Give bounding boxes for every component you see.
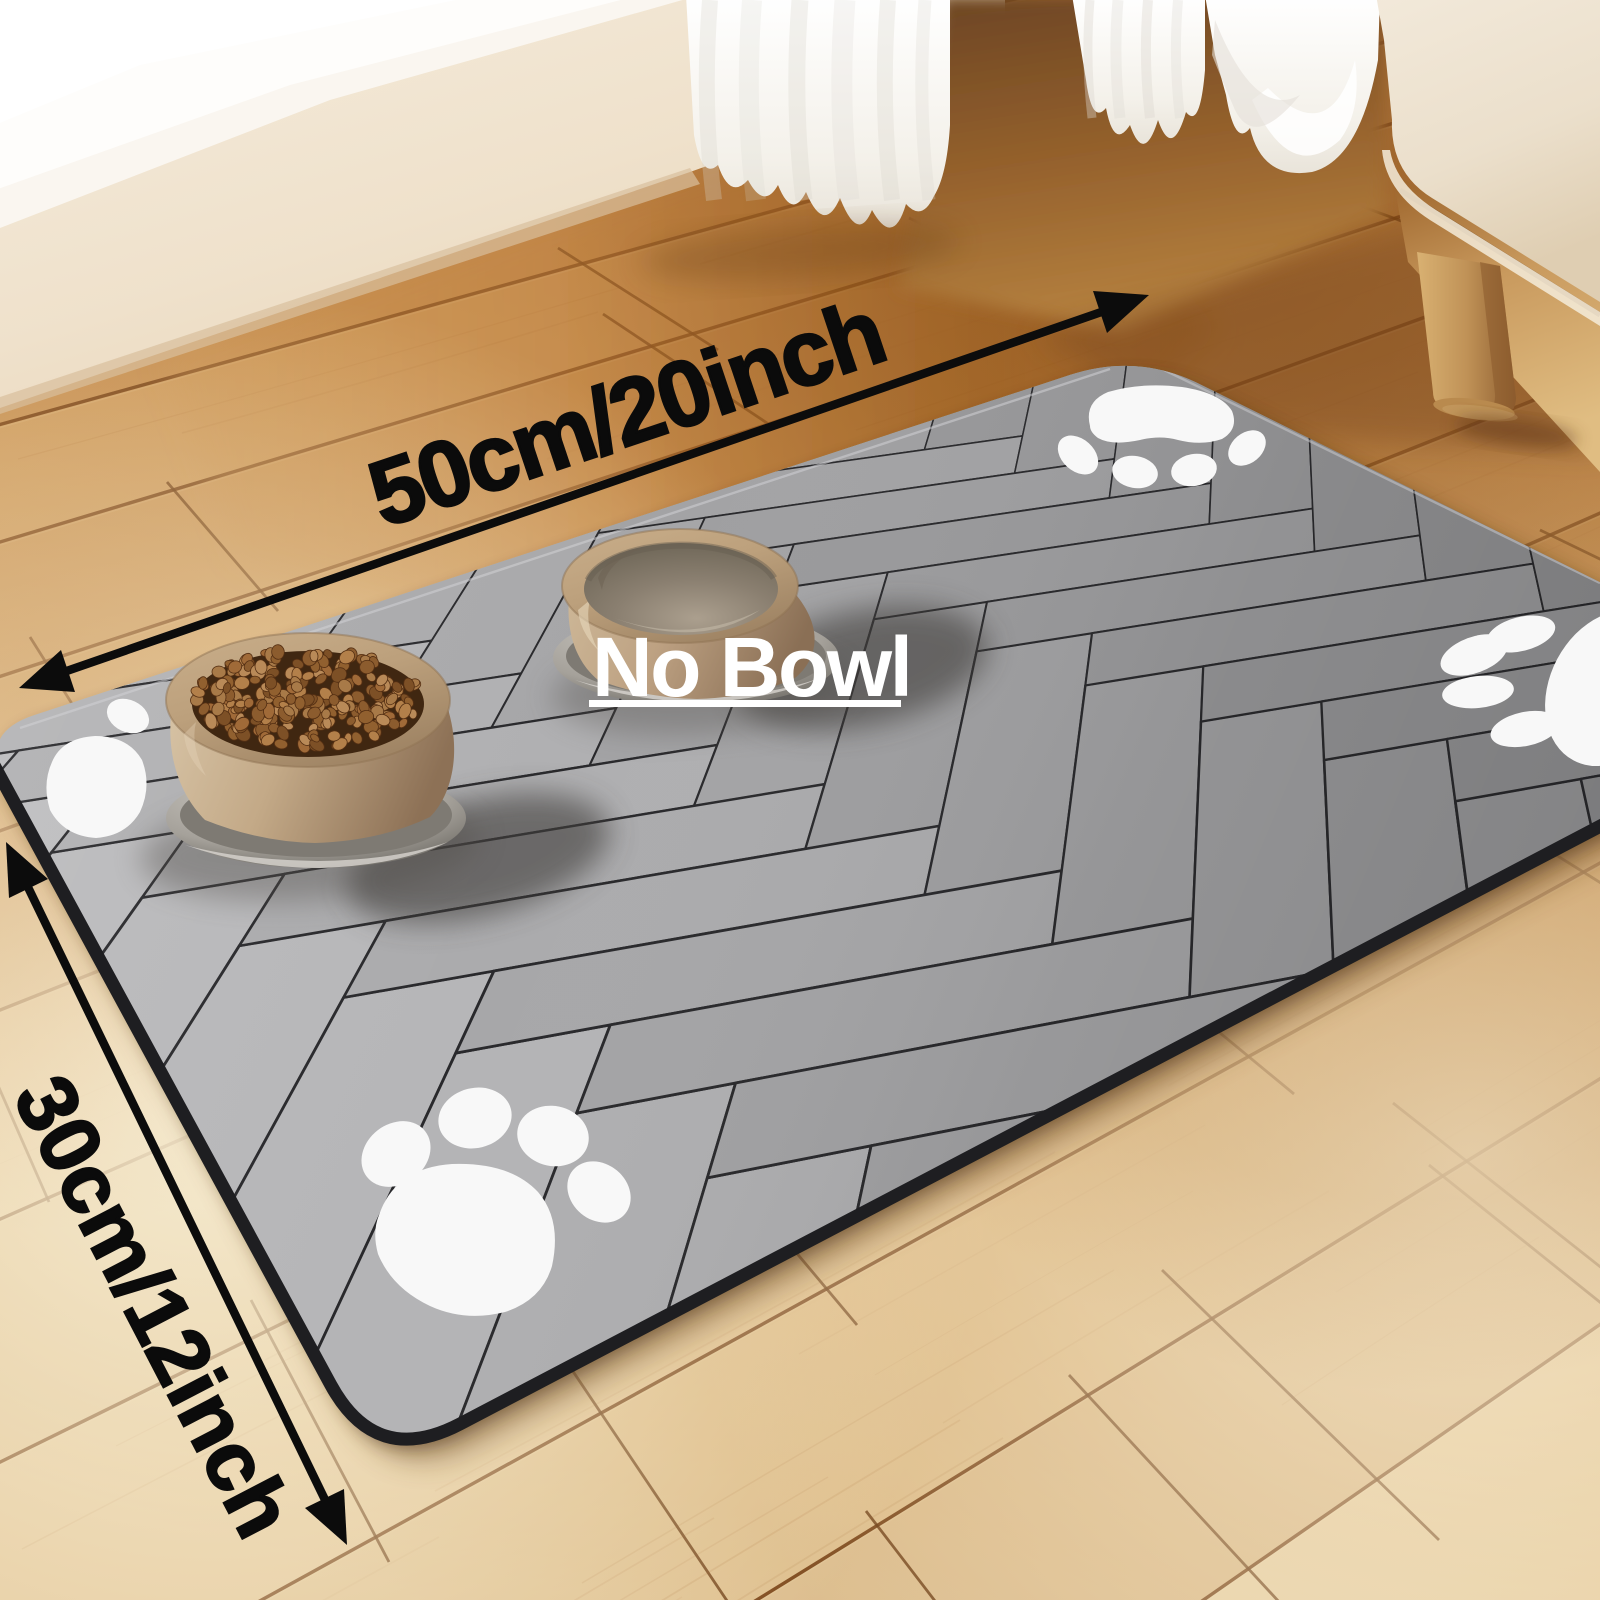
- svg-text:No Bowl: No Bowl: [592, 620, 910, 714]
